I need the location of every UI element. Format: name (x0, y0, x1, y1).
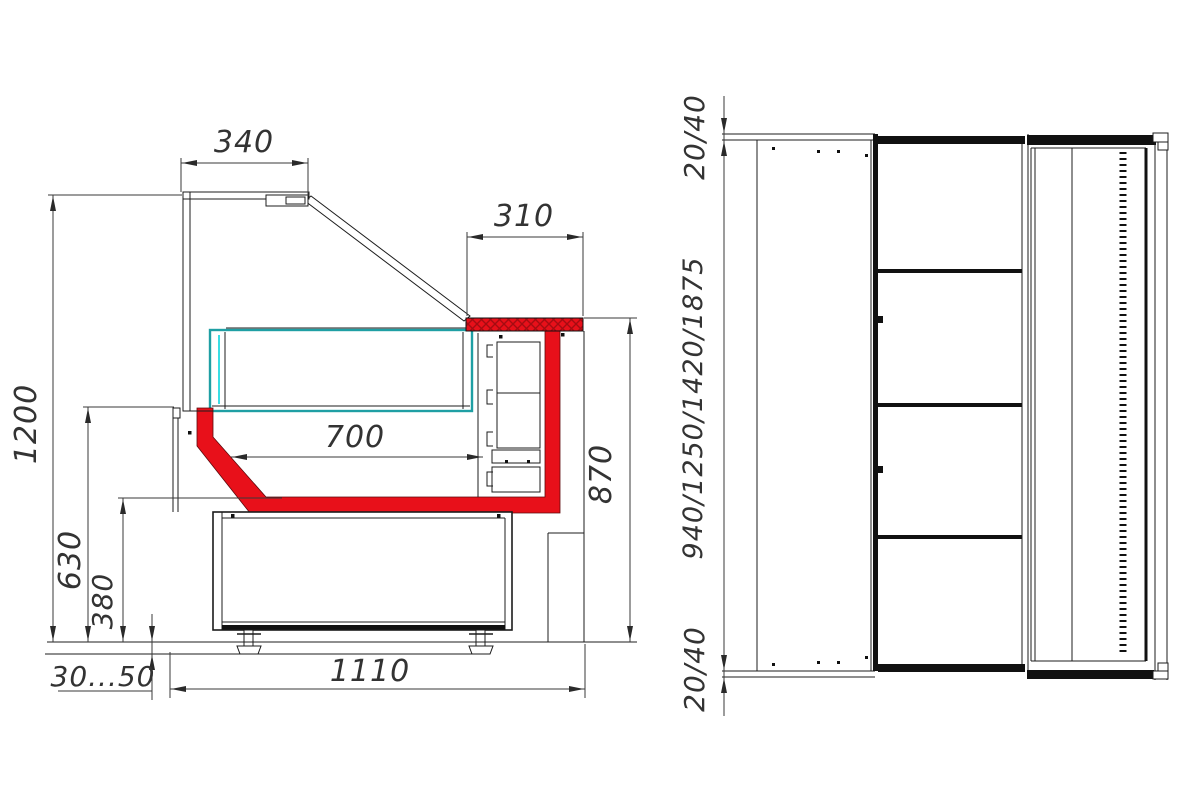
dim-label-630: 630 (53, 530, 88, 590)
duct-base-box (492, 467, 540, 492)
dim-label-380: 380 (86, 573, 119, 629)
technical-drawing-page: 340 310 1200 630 380 870 700 30...50 111… (0, 0, 1200, 800)
side-section-view: 340 310 1200 630 380 870 700 30...50 111… (9, 125, 637, 700)
dim-label-1200: 1200 (9, 384, 44, 464)
dim-label-lengths: 940/1250/1420/1875 (678, 257, 709, 560)
dim-label-870: 870 (584, 444, 619, 504)
shelf-divider-3 (878, 535, 1022, 539)
plan-middle-column (878, 134, 1028, 677)
side-glass (183, 192, 190, 411)
cabinet-screw-right (497, 514, 501, 518)
shelf-divider-1 (878, 269, 1022, 273)
bracket-hook-1 (487, 345, 493, 357)
plan-right-column (1027, 133, 1168, 680)
latch-nub-1 (878, 316, 883, 323)
right-bottom-bar (1027, 670, 1154, 679)
display-deck (210, 328, 472, 411)
base-cabinet (213, 512, 512, 654)
duct-box-lower (497, 393, 540, 448)
dim-label-feet: 30...50 (51, 660, 156, 693)
bracket-hook-3 (487, 432, 493, 446)
panel-outer-line (173, 408, 180, 512)
dimensions-plan-view: 20/40 940/1250/1420/1875 20/40 (678, 94, 724, 716)
latch-nub-2 (878, 466, 883, 473)
plan-view: 20/40 940/1250/1420/1875 20/40 (678, 94, 1168, 716)
front-curved-glass (305, 196, 470, 321)
middle-bottom-bar (878, 664, 1025, 672)
panel-divider-bar (873, 134, 878, 671)
panel-hook (173, 408, 180, 418)
bracket-hook-2 (487, 390, 493, 404)
deck-pan-outline (210, 330, 472, 411)
display-case-drawing: 340 310 1200 630 380 870 700 30...50 111… (0, 0, 1200, 800)
dim-label-overhang-top: 20/40 (678, 94, 711, 180)
dim-label-1110: 1110 (330, 654, 410, 689)
plan-left-panel (757, 134, 878, 671)
panel-screw-dots (772, 147, 868, 666)
duct-box-upper (497, 342, 540, 393)
dim-label-340: 340 (214, 125, 274, 160)
dim-label-310: 310 (494, 199, 554, 234)
shelf-divider-2 (878, 403, 1022, 407)
dim-label-overhang-bottom: 20/40 (678, 626, 711, 712)
cabinet-base-plate (222, 625, 505, 630)
glass-panels (183, 192, 470, 411)
cabinet-outline (213, 512, 512, 630)
cabinet-screw-left (231, 514, 235, 518)
lamp-tube (286, 197, 305, 204)
duct-bar (492, 450, 540, 463)
rear-countertop-hatch (466, 318, 583, 331)
dim-label-700: 700 (325, 420, 385, 455)
end-overhang-strips (722, 134, 875, 677)
right-top-bar (1027, 135, 1156, 145)
middle-top-bar (878, 136, 1025, 144)
